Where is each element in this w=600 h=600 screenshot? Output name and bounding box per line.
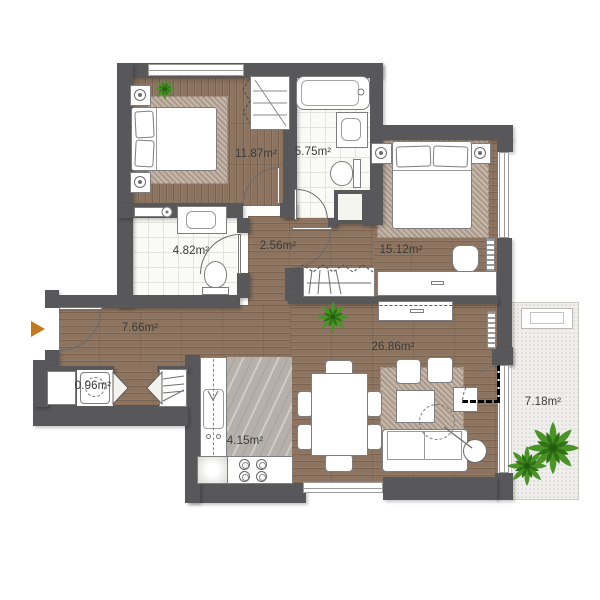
pillow [396,145,432,167]
table-lamp-icon [134,176,146,188]
fridge [197,456,228,484]
room-label-balcony: 7.18m² [525,396,561,408]
table-lamp-icon [134,89,146,101]
small-wardrobe [159,369,187,407]
stove-burner-icon [256,459,267,470]
wardrobe [250,76,290,130]
bathtub-inner [301,80,359,106]
armchair-pouf [427,357,453,383]
bed-blanket-line [393,170,471,171]
apartment-floor-plan: 11.87m² 5.75m² 15.12m² 4.82m² 2.56m² 7.6… [0,0,600,600]
wall [33,360,48,407]
radiator [486,238,495,273]
balcony-door-glazing [499,365,509,473]
wall [237,218,250,233]
room-label-bedroom-2: 15.12m² [380,244,423,256]
wall [237,273,250,298]
room-label-entry-hall: 7.66m² [122,322,158,334]
toilet-tank [202,287,229,295]
radiator [487,311,496,349]
wall [497,138,513,152]
wall [187,483,306,503]
dining-chair [366,391,382,417]
sink-basin [186,211,216,229]
wall [383,477,497,500]
duct-shaft-inner [338,194,362,220]
sink-basin [341,118,361,141]
table-lamp-icon [474,147,486,159]
pillow [134,111,154,139]
room-label-hallway: 2.56m² [260,240,296,252]
wall [492,347,513,365]
wall [370,125,513,140]
stove-burner-icon [239,459,250,470]
sideboard-handle [410,309,424,313]
wall [33,405,188,426]
room-label-bathroom-main: 5.75m² [295,146,331,158]
ceiling-beam-line [295,305,497,306]
room-label-kitchen: 4.15m² [227,435,263,447]
stove-burner-icon [239,471,250,482]
bed-blanket-line [156,108,157,170]
pillow [134,140,154,168]
dining-table [311,373,368,456]
floor-lamp-base [463,439,487,463]
toilet-tank [353,159,361,188]
wall [497,238,512,365]
pillow [433,145,469,167]
wall [45,350,59,366]
arc-lamp-shade [419,404,455,440]
table-lamp-icon [375,147,387,159]
sink-knob [216,434,221,439]
desk-handle [431,281,444,285]
window [499,152,509,238]
armchair-pouf [396,359,421,384]
shower-bar [134,207,164,217]
closet-niche-floor [112,366,162,408]
room-label-storage: 0.96m² [75,380,111,392]
window [148,64,244,76]
balcony-table-inner [530,312,564,324]
counter-center-line [213,359,214,455]
entrance-opening [45,308,59,350]
sink-knob [206,434,211,439]
entrance-arrow-icon [31,321,45,337]
wall [495,473,513,500]
shaft-box [47,371,76,405]
built-in-wardrobe [303,267,375,297]
dining-chair [366,424,382,450]
stove-burner-icon [256,471,267,482]
dining-chair [325,454,353,472]
room-label-living-dining: 26.86m² [372,341,415,353]
desk-chair [452,245,479,273]
toilet-bowl [330,161,353,186]
room-label-bathroom-2: 4.82m² [173,245,209,257]
room-label-bedroom-1: 11.87m² [235,148,277,160]
window [303,482,383,493]
